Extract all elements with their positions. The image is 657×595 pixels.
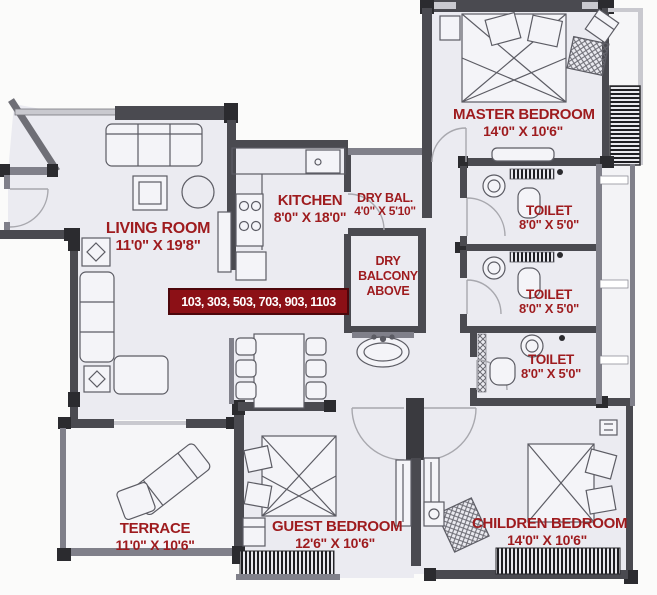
kitchen-name: KITCHEN: [278, 192, 343, 209]
dry-balcony-above-label: DRY BALCONY ABOVE: [352, 254, 424, 299]
unit-numbers-band: 103, 303, 503, 703, 903, 1103: [168, 288, 349, 315]
children-bedroom-name: CHILDREN BEDROOM: [472, 515, 627, 532]
dry-balcony-label: DRY BAL. 4'0" X 5'10": [343, 191, 427, 218]
ac-unit-icon: [600, 420, 617, 435]
terrace-name: TERRACE: [120, 520, 190, 537]
guest-wardrobe-icon: [396, 460, 411, 526]
unit-numbers-text: 103, 303, 503, 703, 903, 1103: [181, 295, 336, 309]
toilet-2-label: TOILET 8'0" X 5'0": [503, 287, 595, 317]
toilet-3-name: TOILET: [528, 352, 574, 367]
dry-balcony-above-name: DRY BALCONY ABOVE: [358, 254, 418, 298]
guest-bedroom-name: GUEST BEDROOM: [272, 518, 402, 535]
guest-bedroom-dims: 12'6" X 10'6": [272, 536, 398, 552]
master-bedroom-name: MASTER BEDROOM: [453, 106, 595, 123]
guest-bedroom-label: GUEST BEDROOM 12'6" X 10'6": [272, 519, 398, 551]
dry-balcony-name: DRY BAL.: [357, 191, 413, 205]
terrace-label: TERRACE 11'0" X 10'6": [103, 521, 207, 553]
toilet-1-label: TOILET 8'0" X 5'0": [503, 203, 595, 233]
floor-plan-page: LIVING ROOM 11'0" X 19'8" KITCHEN 8'0" X…: [0, 0, 657, 595]
toilet-3-dims: 8'0" X 5'0": [505, 367, 597, 382]
living-room-sofa-icon: [106, 124, 202, 166]
master-rug-icon: [567, 37, 609, 76]
dry-balcony-dims: 4'0" X 5'10": [343, 205, 427, 218]
children-bedroom-label: CHILDREN BEDROOM 14'0" X 10'6": [472, 516, 622, 548]
toilet-1-dims: 8'0" X 5'0": [503, 218, 595, 233]
toilet-3-label: TOILET 8'0" X 5'0": [505, 352, 597, 382]
living-room-name: LIVING ROOM: [106, 220, 210, 237]
dining-table-icon: [236, 334, 326, 408]
master-bedroom-label: MASTER BEDROOM 14'0" X 10'6": [453, 107, 593, 139]
kitchen-stove-icon: [236, 194, 263, 246]
living-room-label: LIVING ROOM 11'0" X 19'8": [104, 220, 212, 255]
toilet-1-name: TOILET: [526, 203, 572, 218]
terrace-dims: 11'0" X 10'6": [103, 538, 207, 554]
toilet-2-dims: 8'0" X 5'0": [503, 302, 595, 317]
living-room-dims: 11'0" X 19'8": [104, 238, 212, 255]
toilet-2-name: TOILET: [526, 287, 572, 302]
master-bedroom-dims: 14'0" X 10'6": [453, 124, 593, 140]
children-bedroom-dims: 14'0" X 10'6": [472, 533, 622, 549]
